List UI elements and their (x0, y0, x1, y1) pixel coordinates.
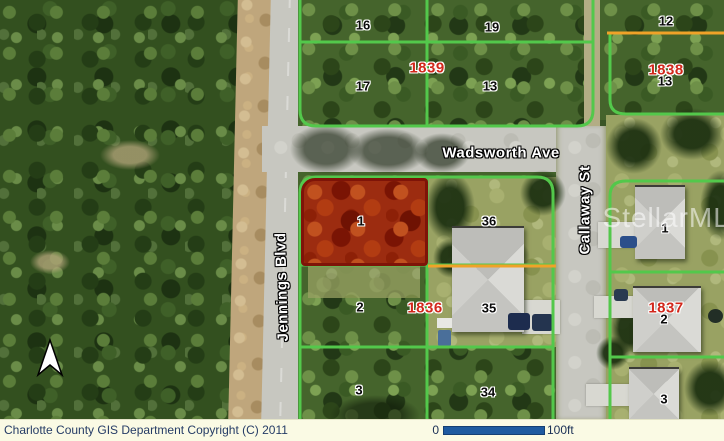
street-label-jennings: Jennings Blvd (272, 232, 292, 341)
parcel-label-12: 12 (659, 14, 673, 29)
scale-start-label: 0 (421, 420, 439, 441)
copyright-text: Charlotte County GIS Department Copyrigh… (4, 420, 288, 441)
parcel-label-34: 34 (481, 385, 495, 400)
parcel-label-3-east: 3 (660, 392, 667, 407)
parcel-label-19: 19 (485, 20, 499, 35)
parcel-label-2-mid: 2 (356, 300, 363, 315)
parcel-label-17: 17 (356, 79, 370, 94)
street-label-callaway: Callaway St (577, 166, 594, 255)
map-canvas[interactable]: Wadsworth Ave Callaway St Jennings Blvd … (0, 0, 724, 419)
status-bar: Charlotte County GIS Department Copyrigh… (0, 419, 724, 441)
block-label-1836: 1836 (407, 300, 442, 317)
block-label-1837: 1837 (648, 300, 683, 317)
block-label-1838: 1838 (648, 62, 683, 79)
parcel-label-16: 16 (356, 18, 370, 33)
block-label-1839: 1839 (409, 60, 444, 77)
street-label-wadsworth: Wadsworth Ave (442, 145, 559, 162)
north-arrow-icon (35, 338, 65, 380)
parcel-label-35: 35 (482, 301, 496, 316)
parcel-label-13-top: 13 (483, 79, 497, 94)
watermark: StellarMLS (603, 202, 724, 234)
scale-end-label: 100ft (547, 420, 574, 441)
parcel-label-1-highlighted: 1 (357, 214, 364, 229)
parcel-label-3-mid: 3 (355, 383, 362, 398)
parcel-label-36: 36 (482, 214, 496, 229)
scale-bar (443, 426, 545, 435)
